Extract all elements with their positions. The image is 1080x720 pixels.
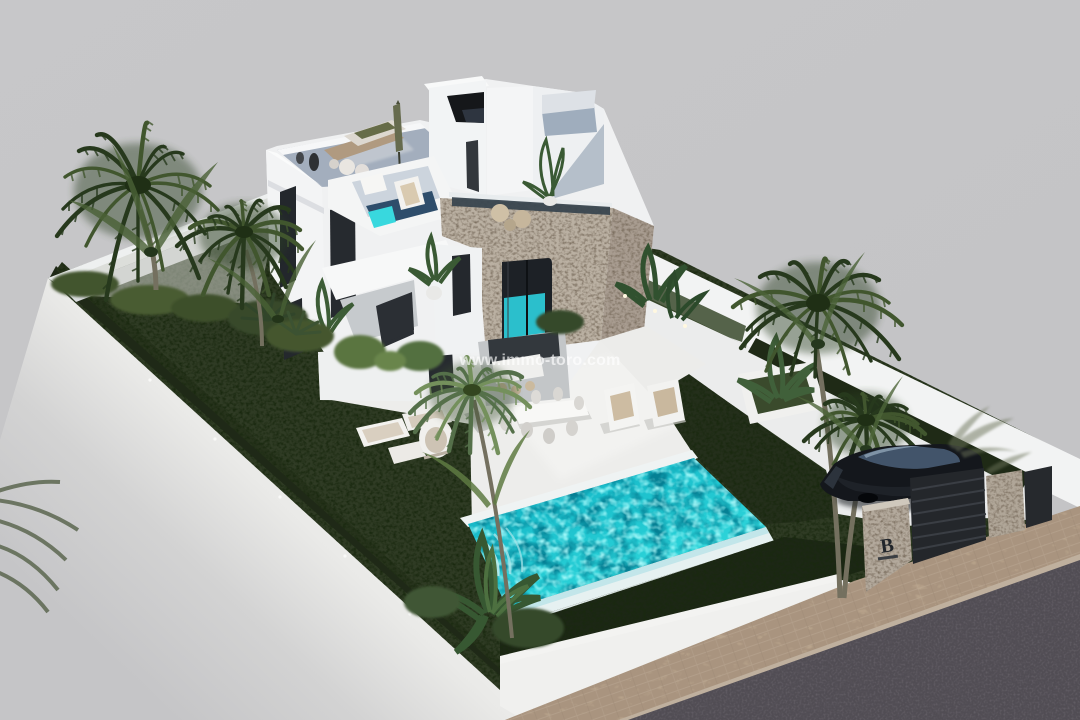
svg-text:www.immo-toro.com: www.immo-toro.com [458,352,620,369]
